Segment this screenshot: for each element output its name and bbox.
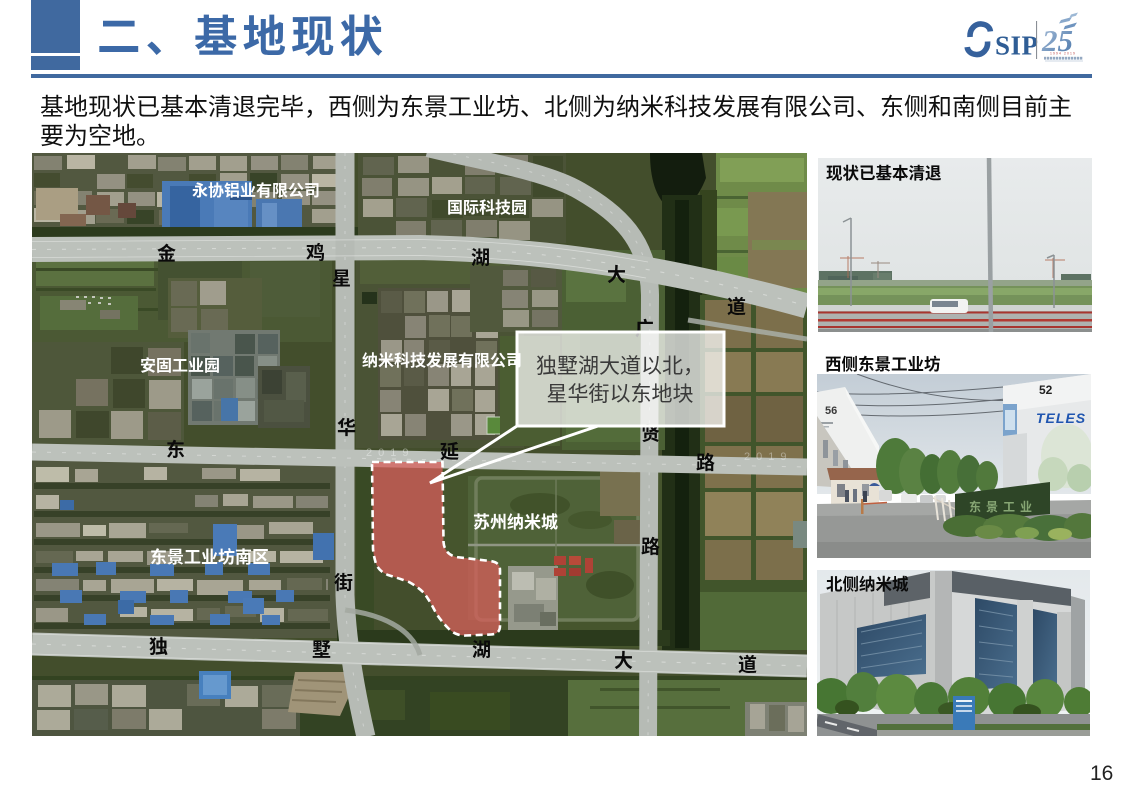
- svg-text:永协铝业有限公司: 永协铝业有限公司: [192, 177, 320, 201]
- svg-text:星: 星: [332, 264, 351, 291]
- svg-text:延: 延: [440, 437, 459, 464]
- svg-text:52: 52: [1039, 383, 1053, 397]
- svg-text:国际科技园: 国际科技园: [447, 194, 527, 218]
- svg-text:1994 2019: 1994 2019: [1050, 52, 1076, 56]
- svg-text:TELES: TELES: [1036, 410, 1086, 426]
- svg-text:鸡: 鸡: [306, 238, 325, 265]
- svg-text:金: 金: [157, 239, 176, 266]
- svg-text:道: 道: [738, 650, 757, 677]
- svg-text:SIP: SIP: [995, 31, 1039, 61]
- svg-text:路: 路: [641, 532, 660, 559]
- svg-text:纳米科技发展有限公司: 纳米科技发展有限公司: [362, 347, 522, 371]
- svg-text:道: 道: [727, 292, 746, 319]
- svg-text:东景工业坊南区: 东景工业坊南区: [150, 543, 269, 568]
- svg-text:56: 56: [825, 405, 837, 417]
- svg-text:街: 街: [334, 568, 353, 595]
- svg-text:东景工业: 东景工业: [969, 498, 1037, 515]
- svg-text:华: 华: [337, 413, 356, 440]
- svg-text:东: 东: [166, 435, 185, 462]
- svg-text:湖: 湖: [471, 243, 490, 270]
- svg-text:星华街以东地块: 星华街以东地块: [547, 378, 694, 408]
- svg-text:墅: 墅: [312, 635, 331, 662]
- svg-text:路: 路: [696, 448, 715, 475]
- svg-text:苏州纳米城: 苏州纳米城: [473, 508, 558, 533]
- svg-text:大: 大: [607, 260, 626, 287]
- svg-text:湖: 湖: [472, 635, 491, 662]
- svg-text:安固工业园: 安固工业园: [140, 352, 220, 376]
- svg-text:大: 大: [614, 646, 633, 673]
- svg-text:独墅湖大道以北，: 独墅湖大道以北，: [536, 350, 704, 380]
- svg-text:独: 独: [149, 632, 168, 659]
